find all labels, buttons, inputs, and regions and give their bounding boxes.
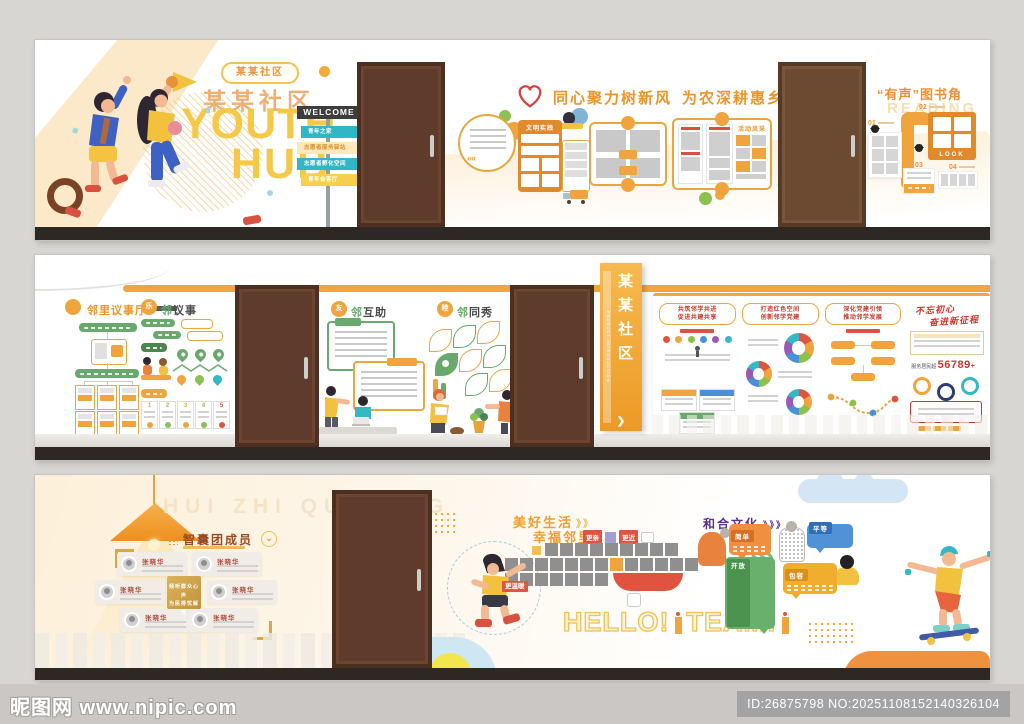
welcome-sign: WELCOME [297,106,361,119]
board-column: 深化党建引领推动邻学发展 [825,303,902,428]
flow-node [851,373,875,381]
member-card [75,385,95,410]
member-card: 张晓华 [207,580,277,604]
jumping-people-illustration [55,68,245,218]
chevrons-icon: «« [467,153,475,163]
leaf-photo-frame [453,325,476,348]
column-title: 共筑邻学共进促进共建共享 [659,303,736,325]
panel-neighbourhood-wall: 邻里议事厅 乐 邻议事 [35,255,990,460]
placeholder-text [778,371,812,381]
org-chart-label [79,323,137,332]
org-chart-node [91,339,127,365]
flow-node [871,357,895,365]
chevron-right-icon: ❯ [600,416,642,427]
stat-line: 服务居民超 56789+ [911,359,975,371]
decor-mini-banner [675,617,682,634]
decor-red-bar [680,329,714,333]
decor-green-dot [699,192,712,205]
speech-bubble: 平等 [807,524,853,548]
door [235,285,319,447]
placeholder-text [748,395,778,405]
decor-teal-bit [267,190,273,196]
donut-ring [913,377,931,395]
panel-youth-hub-wall: 某某社区 某某社区 YOUTH HUB WELCOME 青年之家 志愿者服务驿站… [35,40,990,240]
tag: 更亲 [583,530,602,544]
calligraphy-title-line2: 奋进新征程 [929,312,980,328]
introduction-board: 共筑邻学共进促进共建共享 打造红色空间创新邻学党建 [653,293,990,435]
caption-card [903,168,935,194]
placeholder-grid [521,158,559,187]
decor-orange-button [619,166,637,175]
pie-diagram [786,389,812,415]
map-pin-icon [193,347,209,363]
poster-card [706,124,733,184]
connector-line [855,345,871,346]
decor-tab [621,178,635,192]
photo-board [589,122,667,186]
speech-bubble: 开放 [725,557,775,629]
vertical-community-sign: PRODUCT INTRODUCTION 某某社区 ❯ [600,263,642,431]
door-handle [417,569,421,591]
mascot-afro [835,567,859,585]
slogan-part1: 同心聚力树新风 [553,90,672,107]
baseboard [35,227,990,240]
flow-node [831,341,855,349]
member-card: 张晓华 [95,580,165,604]
member-card [97,411,117,436]
photo-mosaic: 活动风采 [736,124,766,184]
pie-diagram [784,333,814,363]
connector-line [107,332,108,339]
lamp-cord [153,475,155,505]
decor-outline-square [627,593,641,607]
section-badge [65,299,81,315]
decor-tab [715,112,729,126]
team-motto-card: 倾听群众心声为民排忧解难 [167,576,201,609]
connector-line [84,381,132,382]
leaf-photo-frame [429,329,452,352]
member-card: 张晓华 [117,552,187,576]
sign-subtitle: PRODUCT INTRODUCTION [603,271,611,423]
bird-silhouette-icon [871,125,879,133]
door-handle [430,135,434,157]
info-tag-box [699,389,735,411]
leaf-photo-frame [459,349,482,372]
watermark-site: 昵图网 www.nipic.com [10,691,237,720]
board-title: 文明实践 [521,123,559,132]
donut-ring [937,383,955,401]
panel-team-wall: HUI ZHI QU DONG 智囊团成员 ⌄ 张晓华 张晓华 张晓华 张晓华 … [35,475,990,680]
board-title: 活动风采 [736,124,766,133]
drop-icon [193,373,206,386]
decor-red-semicircle [613,573,683,591]
chevron-down-icon: ⌄ [261,531,277,547]
member-card: 张晓华 [192,552,262,576]
info-tag-box [679,412,715,434]
member-card [97,385,117,410]
heart-icon [515,82,545,110]
avatar [121,556,137,572]
meeting-illustration [139,353,173,383]
door [332,490,432,668]
tag: 更温暖 [502,575,528,593]
pie-diagram [746,361,772,387]
org-chart-label [75,369,139,378]
map-pin-icon [211,347,227,363]
column-title: 打造红色空间创新邻学党建 [742,303,819,325]
decor-red-bit [242,214,261,225]
leaf-photo-frame [477,321,500,344]
avatar [124,612,140,628]
list-item-pill [153,331,181,339]
timeline-snake [827,389,901,421]
summary-box [910,401,982,423]
leaf-photo-frame [435,353,458,376]
info-tag-box [661,389,697,411]
placeholder-row [521,146,559,155]
drop-icon [175,373,188,386]
leaf-photo-frame [483,345,506,368]
baseboard [35,668,990,680]
quote-box [910,331,984,355]
tag-row: 更亲 更近 [583,530,654,544]
step-number: 04 [949,164,975,171]
whiteboard-tab [387,358,417,366]
decor-lavender-square [605,532,616,543]
map-pin-icon [175,347,191,363]
section-badge: 乐 [141,299,157,315]
door-handle [579,357,583,379]
step-number: 03 [915,162,923,169]
mascot-orange [698,532,726,566]
step-card: 4 [195,401,212,429]
board-column: 不忘初心 奋进新征程 服务居民超 56789+ [907,303,984,428]
placeholder-row [521,134,559,143]
avatar [211,584,227,600]
flow-node [871,341,895,349]
list-item-pill [141,343,167,352]
door [357,62,445,227]
decor-mini-banner [782,617,789,634]
tag: 更近 [619,530,638,544]
section-title: 邻同秀 [457,304,493,320]
thumbnail-strip [938,171,978,189]
book-shelf-grid [868,132,902,178]
round-notice-board: «« [458,114,516,172]
step-card: 1 [141,401,158,429]
decor-dot-grid [433,511,459,537]
connector-line [863,365,864,373]
door-handle [851,135,855,157]
section-title: 邻里议事厅 [87,302,147,318]
panel1-slogan: 同心聚力树新风为农深耕惠乡邻 [553,87,801,108]
section-badge: 友 [331,301,347,317]
decor-dot-grid [807,621,857,647]
truck-illustration [563,190,589,204]
member-card [119,411,139,436]
member-card [75,411,95,436]
zigzag-line [173,363,229,373]
speech-bubble: 包容 [783,563,837,594]
door [778,62,866,227]
whiteboard-tab [335,318,361,326]
board-column: 打造红色空间创新邻学党建 [742,303,819,428]
decor-dot [319,66,330,77]
look-label: LOOK [928,152,976,158]
list-item-pill [187,331,223,341]
decor-outline-square [641,532,654,543]
list-item-pill [141,389,167,398]
list-item-pill [181,319,213,329]
mascot-dotted [779,527,805,562]
door [510,285,594,447]
cat-silhouette-icon [915,144,923,152]
decor-book-stack [559,123,583,129]
placeholder-text-lines [470,129,506,151]
member-card [119,385,139,410]
sign-title: 某某社区 [614,273,635,369]
section-badge: 睦 [437,301,453,317]
narrow-notice-strip [562,140,590,192]
person-glyph [695,346,700,351]
grid-icon [168,535,178,545]
flow-node [831,357,855,365]
desk-people-illustration [319,381,397,437]
door-handle [304,357,308,379]
team-subtitle-bar [183,546,245,549]
baseboard [35,447,990,460]
poster-card [678,124,703,184]
lamp-bulb [148,539,160,551]
section-title: 邻议事 [161,302,197,318]
decor-tab [715,182,729,196]
decor-red-bar [846,329,880,333]
window-shelf: LOOK [928,112,976,160]
list-item-pill [141,319,175,327]
watermark-bar: 昵图网 www.nipic.com ID:26875798 NO:2025110… [0,684,1024,724]
colored-dot-row [659,336,736,343]
civic-practice-board: 文明实践 [518,120,562,192]
photo-wall-row [545,543,678,556]
watermark-id: ID:26875798 NO:20251108152140326104 [737,691,1010,717]
step-card: 5 [213,401,230,429]
donut-ring [961,377,979,395]
board-column: 共筑邻学共进促进共建共享 [659,303,736,428]
step-card: 2 [159,401,176,429]
step-card: 3 [177,401,194,429]
step-number: 02 [919,104,945,111]
column-title: 深化党建引领推动邻学发展 [825,303,902,325]
activity-showcase-board: 活动风采 [672,118,772,190]
decor-orange-button [619,150,637,159]
speech-bubble: 简单 [729,524,771,555]
drop-icon [211,373,224,386]
stat-value: 56789 [938,359,971,371]
decor-tab [621,116,635,130]
skateboarder-illustration [885,541,990,645]
decor-cloud [798,479,908,503]
placeholder-text [748,339,778,349]
avatar [99,584,115,600]
stock-design-preview: 某某社区 某某社区 YOUTH HUB WELCOME 青年之家 志愿者服务驿站… [0,0,1024,724]
avatar [196,556,212,572]
